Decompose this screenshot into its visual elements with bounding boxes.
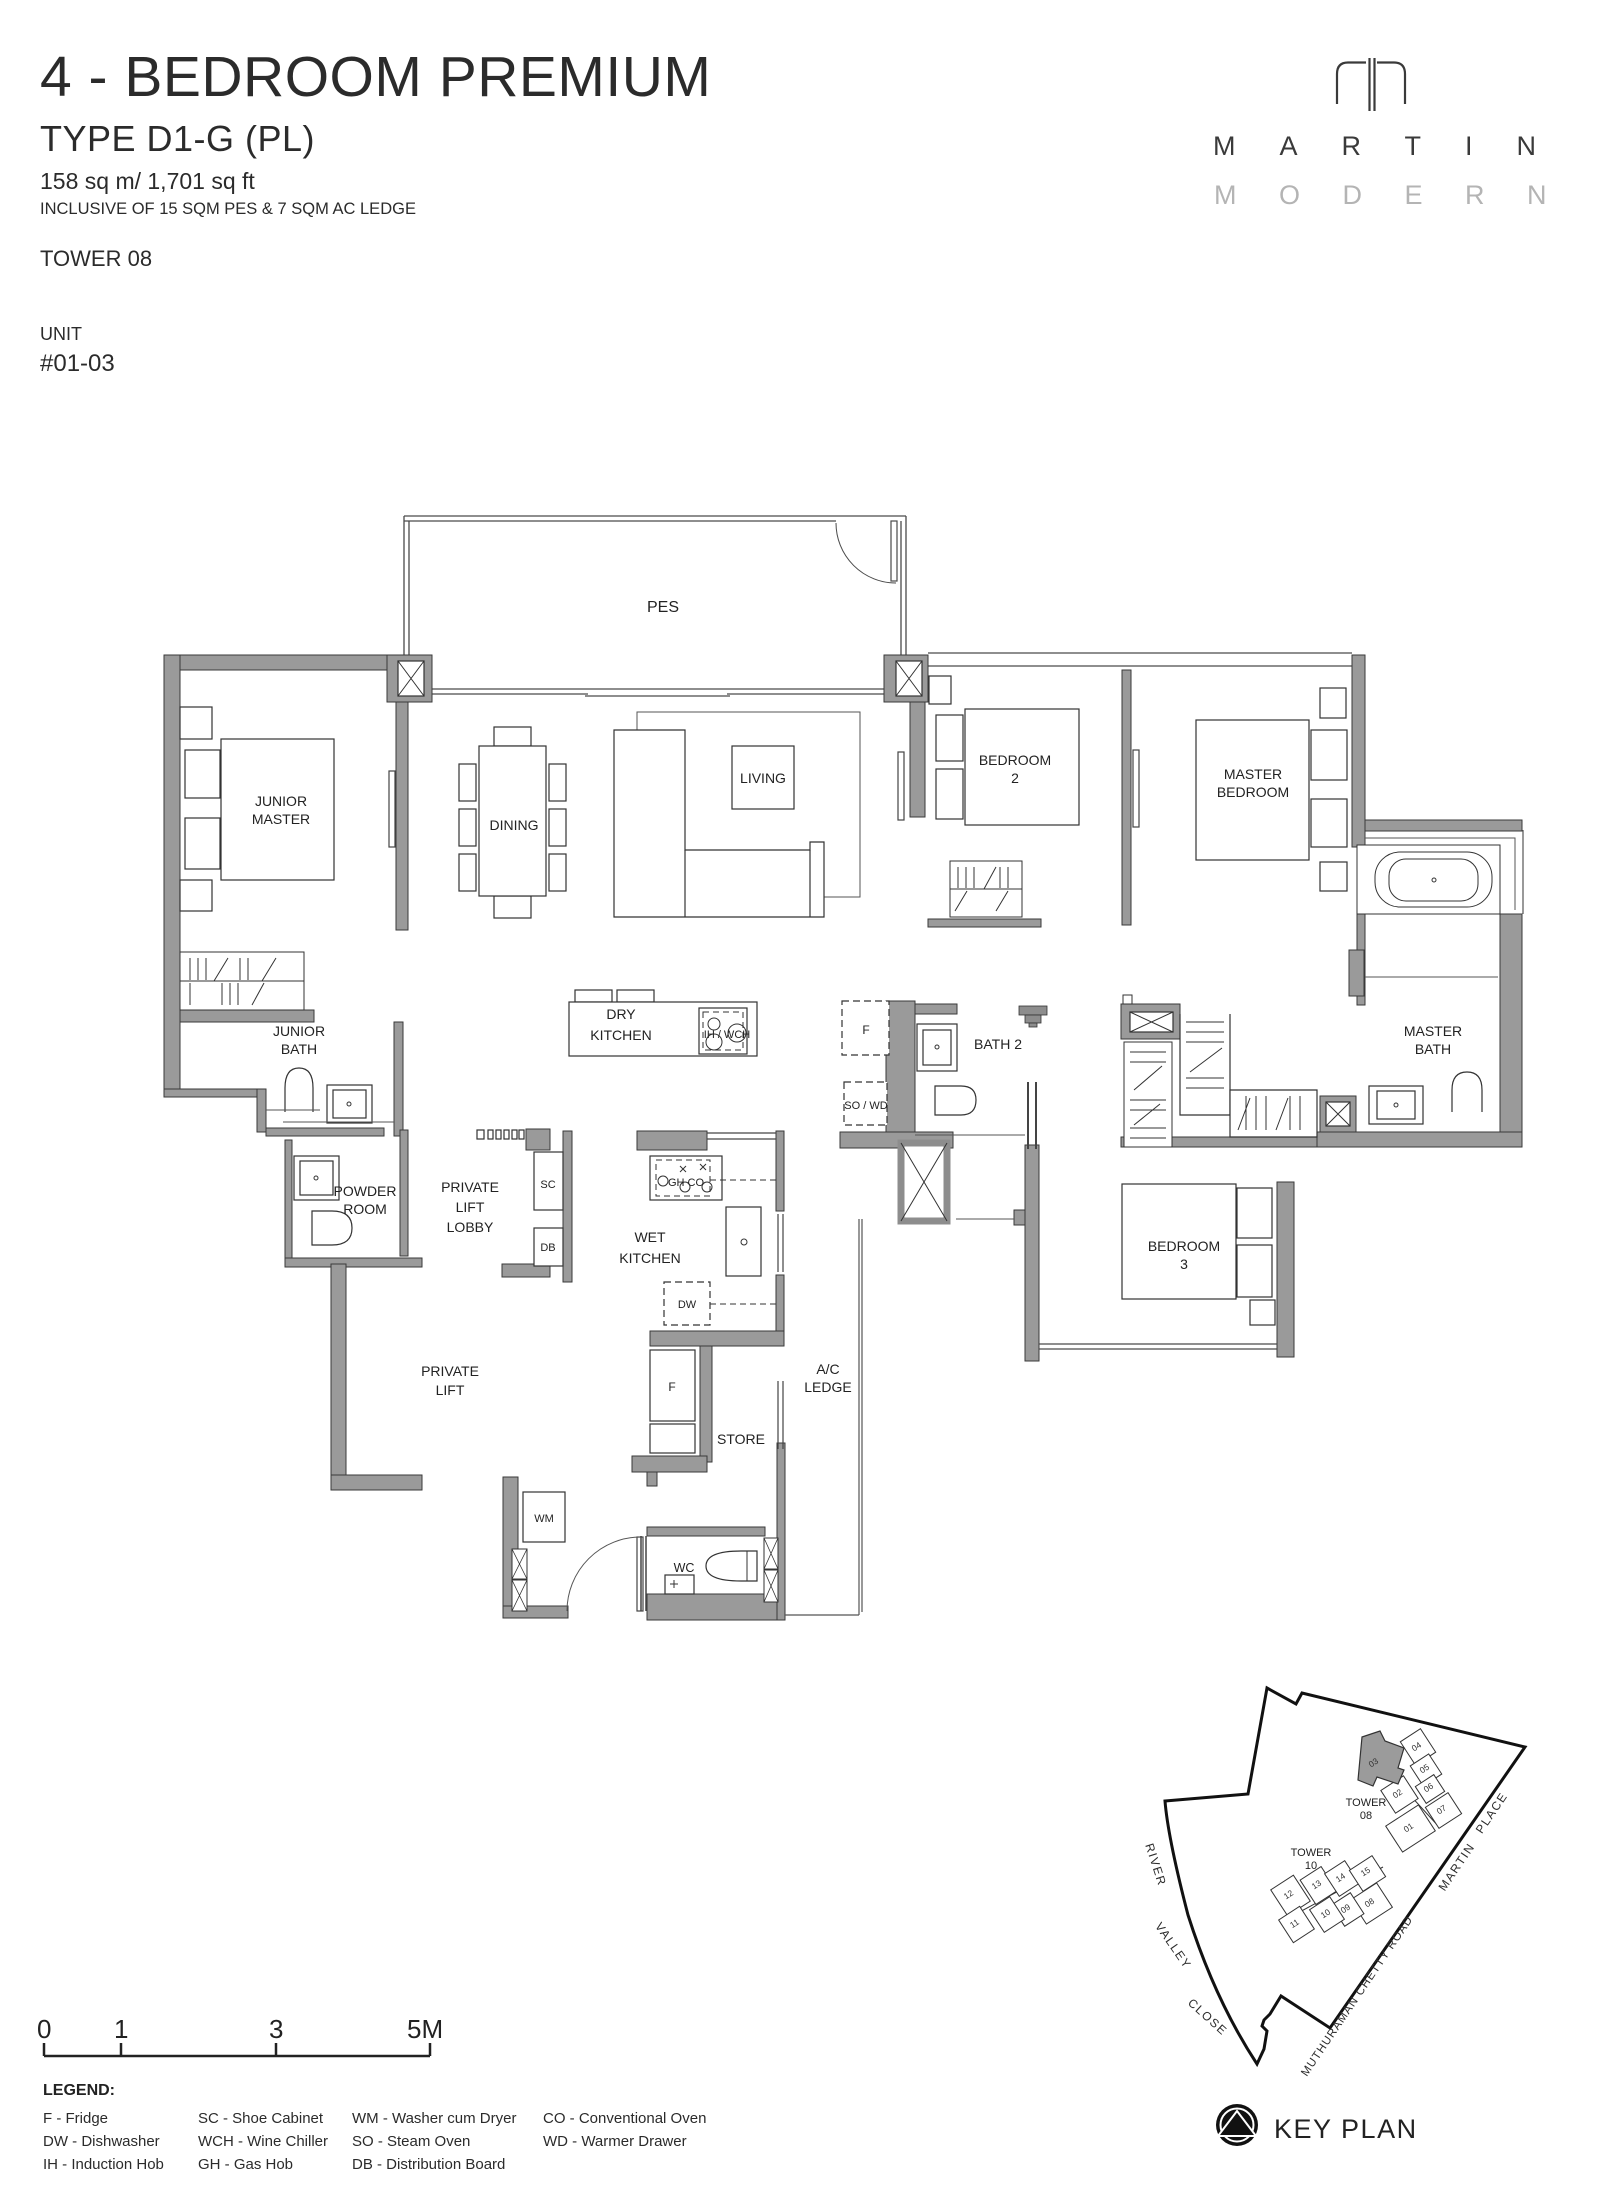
svg-text:KITCHEN: KITCHEN [590, 1027, 651, 1043]
svg-text:F: F [668, 1380, 675, 1394]
svg-text:2: 2 [1011, 770, 1019, 786]
svg-text:3: 3 [1180, 1256, 1188, 1272]
svg-text:WM: WM [534, 1513, 554, 1525]
svg-text:BEDROOM: BEDROOM [979, 752, 1051, 768]
svg-text:10: 10 [1305, 1860, 1317, 1872]
svg-text:LOBBY: LOBBY [447, 1219, 494, 1235]
svg-text:BEDROOM: BEDROOM [1217, 784, 1289, 800]
svg-text:MASTER: MASTER [1224, 766, 1282, 782]
svg-text:SO / WD: SO / WD [844, 1100, 887, 1112]
svg-text:F: F [862, 1023, 869, 1037]
svg-text:3: 3 [269, 2014, 283, 2044]
svg-text:DW: DW [678, 1299, 697, 1311]
svg-text:JUNIOR: JUNIOR [273, 1023, 325, 1039]
svg-text:SC: SC [540, 1179, 555, 1191]
svg-text:08: 08 [1360, 1810, 1372, 1822]
svg-text:MODERN: MODERN [1214, 180, 1560, 210]
svg-text:DINING: DINING [490, 817, 539, 833]
svg-text:POWDER: POWDER [334, 1183, 397, 1199]
svg-text:IH / WCH: IH / WCH [704, 1029, 750, 1041]
svg-text:5M: 5M [407, 2014, 443, 2044]
svg-text:BATH: BATH [281, 1041, 317, 1057]
svg-text:STORE: STORE [717, 1431, 765, 1447]
svg-text:TOWER: TOWER [1346, 1797, 1387, 1809]
svg-text:MASTER: MASTER [1404, 1023, 1462, 1039]
svg-text:ROOM: ROOM [343, 1201, 387, 1217]
svg-text:LIVING: LIVING [740, 770, 786, 786]
svg-text:LIFT: LIFT [436, 1382, 465, 1398]
svg-text:0: 0 [37, 2014, 51, 2044]
svg-text:GH CO: GH CO [668, 1177, 705, 1189]
svg-text:MASTER: MASTER [252, 811, 310, 827]
svg-text:A/C: A/C [816, 1361, 839, 1377]
svg-text:DB: DB [540, 1242, 555, 1254]
svg-text:PES: PES [647, 599, 679, 616]
svg-text:WET: WET [634, 1229, 666, 1245]
svg-text:1: 1 [114, 2014, 128, 2044]
svg-text:LEDGE: LEDGE [804, 1379, 851, 1395]
svg-text:VALLEY: VALLEY [1152, 1920, 1194, 1972]
svg-text:LIFT: LIFT [456, 1199, 485, 1215]
svg-text:TOWER: TOWER [1291, 1847, 1332, 1859]
svg-text:PRIVATE: PRIVATE [421, 1363, 479, 1379]
svg-text:MUTHURAMAN CHETTY ROAD: MUTHURAMAN CHETTY ROAD [1299, 1914, 1415, 2079]
svg-text:WC: WC [674, 1561, 695, 1575]
svg-text:BATH: BATH [1415, 1041, 1451, 1057]
svg-text:JUNIOR: JUNIOR [255, 793, 307, 809]
svg-text:RIVER: RIVER [1142, 1842, 1169, 1888]
svg-text:DRY: DRY [606, 1006, 636, 1022]
svg-text:PRIVATE: PRIVATE [441, 1179, 499, 1195]
svg-text:MARTIN: MARTIN [1213, 131, 1560, 161]
svg-text:BATH 2: BATH 2 [974, 1036, 1022, 1052]
svg-text:KITCHEN: KITCHEN [619, 1250, 680, 1266]
svg-text:BEDROOM: BEDROOM [1148, 1238, 1220, 1254]
svg-text:KEY PLAN: KEY PLAN [1274, 2114, 1418, 2144]
